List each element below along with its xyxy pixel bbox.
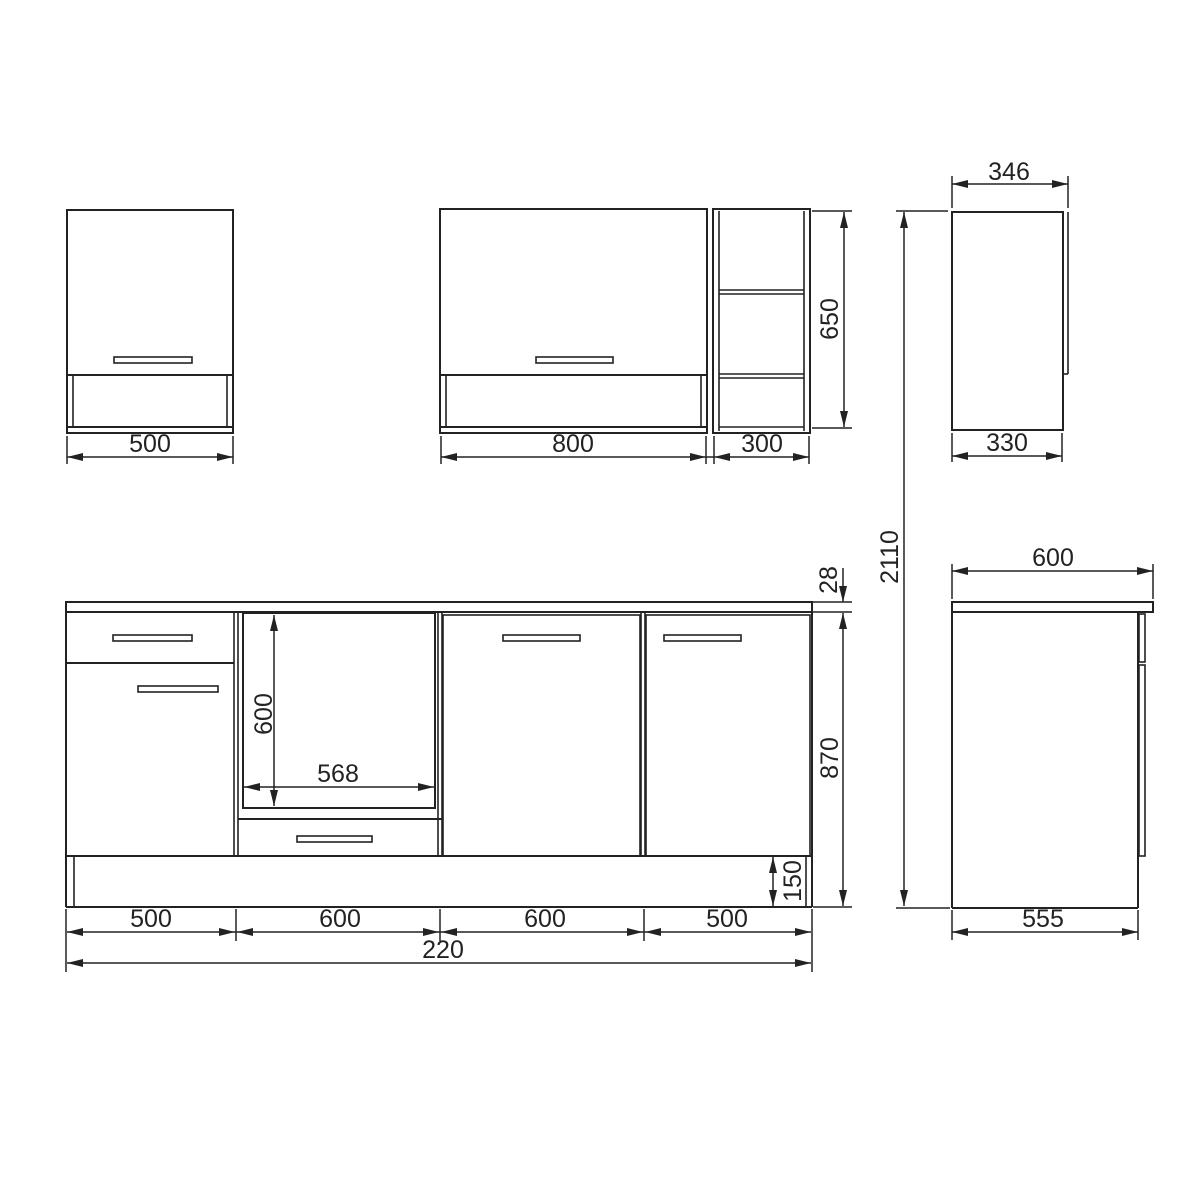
dim-label-568: 568 [317, 760, 359, 788]
arrowhead [900, 890, 908, 906]
dim-label-seg-600: 600 [319, 905, 361, 933]
door-outline [646, 615, 810, 856]
worktop-side [952, 602, 1153, 612]
arrowhead [1052, 180, 1068, 188]
cabinet-outline [67, 210, 233, 433]
cabinet-outline [440, 209, 707, 433]
arrowhead [418, 783, 434, 791]
dim-label-2110: 2110 [876, 530, 904, 584]
door-handle [114, 357, 192, 363]
dim-label-600-side: 600 [1032, 544, 1074, 572]
arrowhead [795, 928, 811, 936]
arrowhead [67, 928, 83, 936]
arrowhead [1137, 567, 1153, 575]
arrowhead [840, 212, 848, 228]
arrowhead [217, 453, 233, 461]
arrowhead [714, 453, 730, 461]
wall-cabinet-large-front: 800 300 650 [440, 209, 852, 464]
arrowhead [627, 928, 643, 936]
door-handle [138, 686, 218, 692]
door-handle [664, 635, 741, 641]
oven-drawer-handle [297, 836, 372, 842]
open-shelf-outline [713, 209, 810, 433]
arrowhead [952, 567, 968, 575]
arrowhead [244, 783, 260, 791]
drawer-front-edge [1139, 614, 1145, 662]
arrowhead [441, 928, 457, 936]
arrowhead [1122, 928, 1138, 936]
arrowhead [1046, 452, 1062, 460]
arrowhead [270, 615, 278, 631]
arrowhead [645, 928, 661, 936]
dim-label-total-220: 220 [422, 936, 464, 964]
wall-cabinet-side-view: 346 330 [952, 158, 1068, 462]
dim-label-seg-600b: 600 [524, 905, 566, 933]
arrowhead [952, 180, 968, 188]
door-handle [503, 635, 580, 641]
base-cabinet-side-view: 600 555 [952, 544, 1153, 940]
arrowhead [839, 613, 847, 629]
arrowhead [769, 857, 777, 873]
base-run-front: 600 568 150 28 870 [66, 566, 852, 972]
dim-label-28: 28 [815, 566, 843, 594]
door-outline [443, 615, 640, 856]
arrowhead [270, 790, 278, 806]
dim-label-300: 300 [741, 430, 783, 458]
technical-drawing-canvas: 500 800 300 650 [0, 0, 1200, 1200]
arrowhead [793, 453, 809, 461]
wall-cabinet-small-front: 500 [67, 210, 233, 464]
arrowhead [952, 928, 968, 936]
arrowhead [795, 959, 811, 967]
worktop [66, 602, 812, 612]
dim-label-seg-500b: 500 [706, 905, 748, 933]
arrowhead [219, 928, 235, 936]
dim-label-346: 346 [988, 158, 1030, 186]
dim-label-seg-500: 500 [130, 905, 172, 933]
overall-height-dimension: 2110 [876, 211, 950, 908]
drawer-handle [113, 635, 192, 641]
dim-label-555: 555 [1022, 905, 1064, 933]
dim-label-650: 650 [816, 298, 844, 340]
arrowhead [840, 411, 848, 427]
arrowhead [237, 928, 253, 936]
dim-label-500: 500 [129, 430, 171, 458]
dim-label-150: 150 [779, 860, 807, 902]
dim-label-800: 800 [552, 430, 594, 458]
cabinet-body [952, 212, 1063, 430]
arrowhead [900, 212, 908, 228]
dim-label-oven-600: 600 [250, 693, 278, 735]
arrowhead [67, 959, 83, 967]
door-handle [536, 357, 613, 363]
arrowhead [952, 452, 968, 460]
dim-label-870: 870 [816, 737, 844, 779]
arrowhead [839, 890, 847, 906]
kitchen-dimension-drawing: 500 800 300 650 [0, 0, 1200, 1200]
arrowhead [423, 928, 439, 936]
arrowhead [67, 453, 83, 461]
arrowhead [769, 890, 777, 906]
arrowhead [690, 453, 706, 461]
dim-label-330: 330 [986, 429, 1028, 457]
arrowhead [441, 453, 457, 461]
door-front-edge [1139, 665, 1145, 856]
